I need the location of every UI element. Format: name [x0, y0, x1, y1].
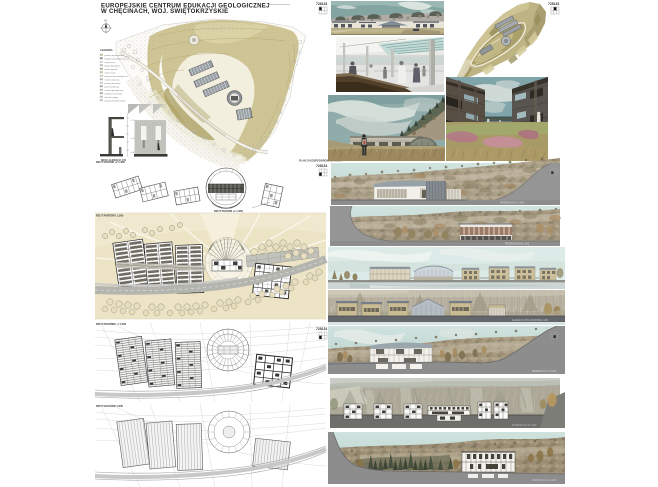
svg-text:PRZEKROJ A-A 1:200: PRZEKROJ A-A 1:200 — [500, 202, 524, 205]
svg-text:RZUT PARTERU 1:200: RZUT PARTERU 1:200 — [96, 214, 124, 218]
svg-text:N: N — [105, 19, 107, 23]
svg-text:LEGENDA: LEGENDA — [100, 48, 113, 52]
svg-text:droga dojazdowa: droga dojazdowa — [105, 65, 122, 68]
svg-text:strefa wejsciowa: strefa wejsciowa — [105, 79, 121, 82]
svg-text:RZUT POZIOMU -1 1:250: RZUT POZIOMU -1 1:250 — [96, 322, 127, 326]
svg-text:PRZEKROJ E-E 1:200: PRZEKROJ E-E 1:200 — [532, 479, 557, 482]
svg-text:RZUT DACHOW 1:250: RZUT DACHOW 1:250 — [96, 404, 124, 408]
svg-text:granica opracowania: granica opracowania — [105, 54, 125, 57]
svg-text:RZUT POZIOM +1 1:250: RZUT POZIOM +1 1:250 — [214, 209, 243, 213]
svg-text:728133: 728133 — [316, 327, 327, 331]
svg-text:ELEWACJA POLUDNIOWA 1:200: ELEWACJA POLUDNIOWA 1:200 — [512, 319, 549, 322]
svg-text:parking terenowy: parking terenowy — [105, 82, 122, 85]
svg-text:zielen wysoka: zielen wysoka — [105, 69, 119, 71]
svg-text:728133: 728133 — [316, 2, 327, 6]
svg-text:728133: 728133 — [548, 2, 559, 6]
svg-text:PRZEKROJ C-C 1:200: PRZEKROJ C-C 1:200 — [532, 370, 557, 373]
svg-text:istniejacy kamieniolom: istniejacy kamieniolom — [105, 100, 126, 103]
svg-text:punkt widokowy: punkt widokowy — [105, 86, 121, 89]
svg-text:zbiornik wodny: zbiornik wodny — [105, 96, 120, 99]
svg-text:powierzchnia biologiczna: powierzchnia biologiczna — [105, 75, 129, 78]
svg-text:W CHĘCINACH, WOJ. ŚWIĘTOKRZYSK: W CHĘCINACH, WOJ. ŚWIĘTOKRZYSKIE — [101, 8, 228, 15]
svg-text:sciezka geologiczna: sciezka geologiczna — [105, 90, 124, 92]
svg-text:728133: 728133 — [316, 164, 327, 168]
svg-text:zielen niska: zielen niska — [105, 73, 117, 75]
svg-text:amfiteatr terenowy: amfiteatr terenowy — [105, 93, 123, 96]
svg-text:RZUT POZIOM +2 1:250: RZUT POZIOM +2 1:250 — [96, 160, 125, 164]
svg-text:PRZEKROJ D-D 1:200: PRZEKROJ D-D 1:200 — [512, 424, 537, 427]
svg-text:ciagi piesze: ciagi piesze — [105, 62, 117, 64]
svg-text:budynki projektowane: budynki projektowane — [105, 58, 126, 61]
svg-text:PRZEKROJ B-B 1:200: PRZEKROJ B-B 1:200 — [505, 243, 530, 246]
